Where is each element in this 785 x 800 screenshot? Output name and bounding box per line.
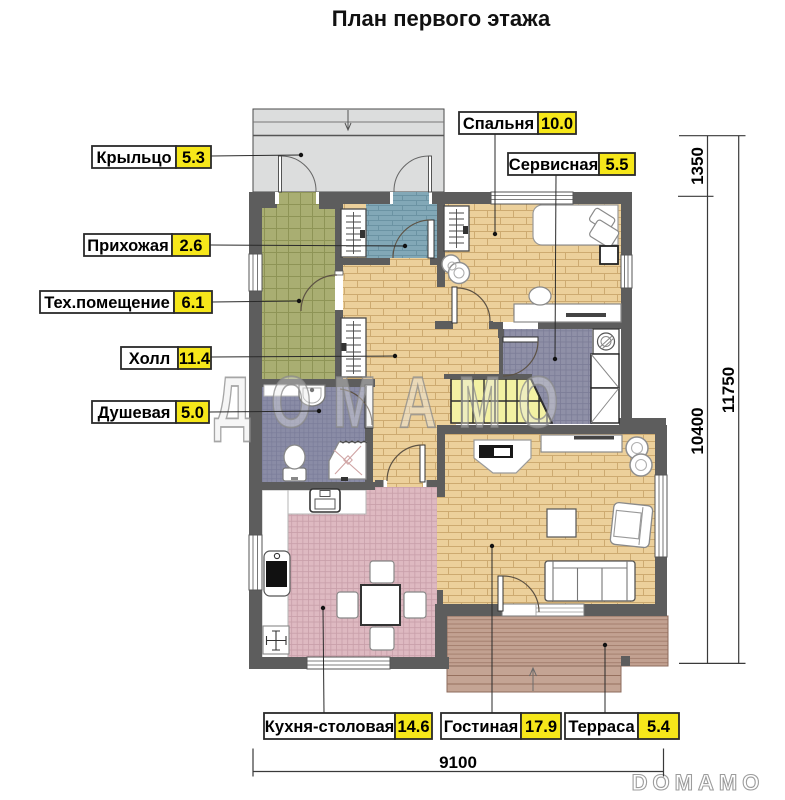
svg-text:10.0: 10.0	[541, 115, 573, 133]
svg-text:Терраса: Терраса	[568, 718, 635, 736]
svg-text:14.6: 14.6	[397, 718, 429, 736]
svg-text:План первого этажа: План первого этажа	[332, 6, 551, 31]
svg-text:11.4: 11.4	[179, 350, 211, 368]
svg-text:Сервисная: Сервисная	[509, 156, 598, 174]
svg-text:Кухня-столовая: Кухня-столовая	[265, 718, 395, 736]
svg-text:5.4: 5.4	[647, 718, 671, 736]
svg-text:9100: 9100	[439, 753, 477, 772]
svg-text:5.5: 5.5	[606, 156, 629, 174]
svg-text:11750: 11750	[719, 367, 738, 413]
svg-text:17.9: 17.9	[525, 718, 557, 736]
svg-text:Гостиная: Гостиная	[444, 718, 519, 736]
svg-text:Тех.помещение: Тех.помещение	[44, 294, 170, 312]
svg-text:Прихожая: Прихожая	[87, 237, 168, 255]
svg-text:Душевая: Душевая	[98, 404, 171, 422]
svg-text:5.3: 5.3	[182, 149, 205, 167]
svg-text:Спальня: Спальня	[463, 115, 534, 133]
svg-text:2.6: 2.6	[180, 237, 203, 255]
svg-text:6.1: 6.1	[182, 294, 205, 312]
svg-text:5.0: 5.0	[181, 404, 204, 422]
svg-text:Холл: Холл	[129, 350, 170, 368]
svg-text:DOMAMO: DOMAMO	[632, 770, 765, 795]
svg-text:1350: 1350	[688, 147, 707, 185]
svg-text:Крыльцо: Крыльцо	[96, 149, 171, 167]
svg-text:10400: 10400	[688, 407, 707, 454]
